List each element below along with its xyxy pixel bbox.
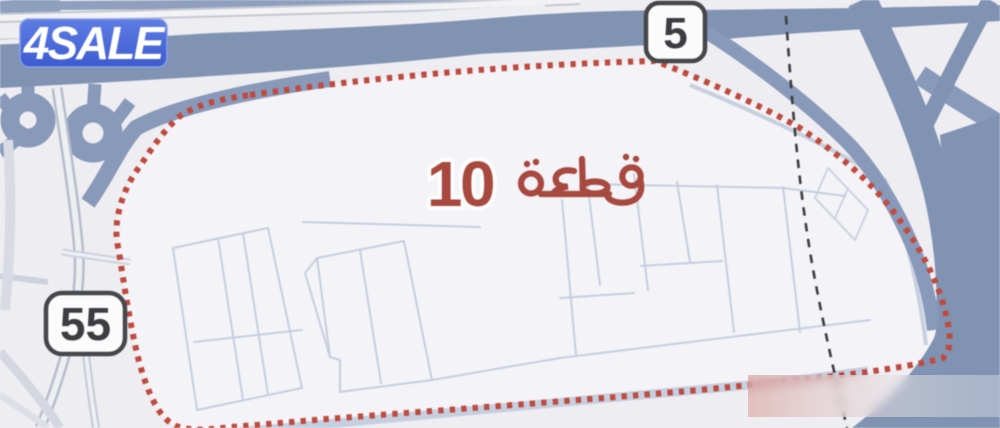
svg-text:5: 5: [663, 9, 687, 58]
svg-text:10: 10: [427, 148, 493, 220]
svg-text:55: 55: [60, 298, 111, 350]
svg-text:4SALE: 4SALE: [23, 17, 166, 69]
